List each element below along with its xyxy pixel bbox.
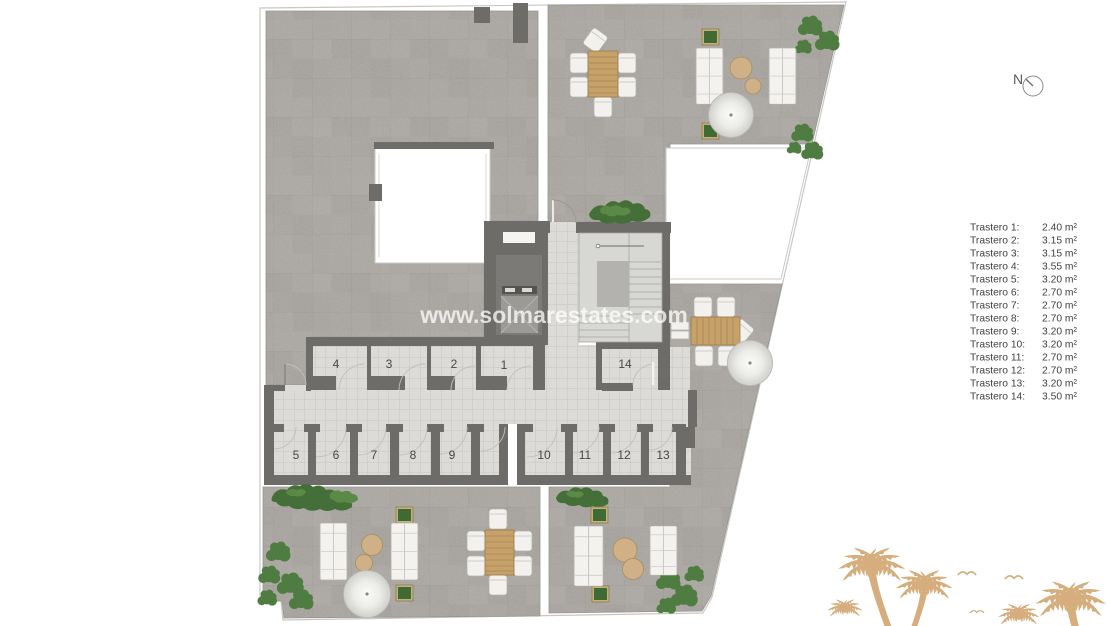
svg-text:Trastero 12:: Trastero 12: [970, 366, 1025, 377]
svg-text:Trastero 11:: Trastero 11: [970, 353, 1024, 364]
svg-text:3.20 m²: 3.20 m² [1042, 327, 1077, 338]
svg-text:2.70 m²: 2.70 m² [1042, 353, 1077, 364]
svg-text:2.40 m²: 2.40 m² [1042, 223, 1077, 234]
svg-text:Trastero 6:: Trastero 6: [970, 288, 1019, 299]
svg-text:6: 6 [333, 448, 340, 462]
svg-text:11: 11 [579, 448, 592, 462]
svg-text:Trastero 13:: Trastero 13: [970, 379, 1025, 390]
svg-text:Trastero 2:: Trastero 2: [970, 236, 1019, 247]
svg-text:Trastero 5:: Trastero 5: [970, 275, 1019, 286]
svg-text:3: 3 [386, 357, 393, 371]
svg-text:2: 2 [451, 357, 458, 371]
svg-text:Trastero 1:: Trastero 1: [970, 223, 1019, 234]
svg-text:5: 5 [293, 448, 300, 462]
svg-text:Trastero 9:: Trastero 9: [970, 327, 1019, 338]
svg-text:9: 9 [449, 448, 456, 462]
svg-text:2.70 m²: 2.70 m² [1042, 366, 1077, 377]
svg-text:2.70 m²: 2.70 m² [1042, 288, 1077, 299]
svg-text:Trastero 4:: Trastero 4: [970, 262, 1019, 273]
svg-text:3.20 m²: 3.20 m² [1042, 340, 1077, 351]
svg-text:13: 13 [656, 448, 670, 462]
svg-text:3.20 m²: 3.20 m² [1042, 379, 1077, 390]
svg-text:8: 8 [410, 448, 417, 462]
svg-text:www.solmarestates.com: www.solmarestates.com [419, 302, 688, 328]
svg-text:Trastero 14:: Trastero 14: [970, 392, 1025, 403]
svg-text:3.15 m²: 3.15 m² [1042, 249, 1077, 260]
svg-text:10: 10 [537, 448, 551, 462]
svg-text:3.50 m²: 3.50 m² [1042, 392, 1077, 403]
svg-text:Trastero 7:: Trastero 7: [970, 301, 1019, 312]
svg-text:3.20 m²: 3.20 m² [1042, 275, 1077, 286]
svg-text:3.15 m²: 3.15 m² [1042, 236, 1077, 247]
svg-text:12: 12 [617, 448, 631, 462]
svg-text:2.70 m²: 2.70 m² [1042, 314, 1077, 325]
svg-text:4: 4 [333, 357, 340, 371]
svg-text:Trastero 10:: Trastero 10: [970, 340, 1025, 351]
svg-text:Trastero 3:: Trastero 3: [970, 249, 1019, 260]
svg-text:Trastero 8:: Trastero 8: [970, 314, 1019, 325]
svg-text:1: 1 [501, 358, 508, 372]
svg-text:N: N [1013, 71, 1023, 87]
svg-text:7: 7 [371, 448, 378, 462]
svg-text:14: 14 [618, 357, 632, 371]
svg-text:3.55 m²: 3.55 m² [1042, 262, 1077, 273]
svg-text:2.70 m²: 2.70 m² [1042, 301, 1077, 312]
